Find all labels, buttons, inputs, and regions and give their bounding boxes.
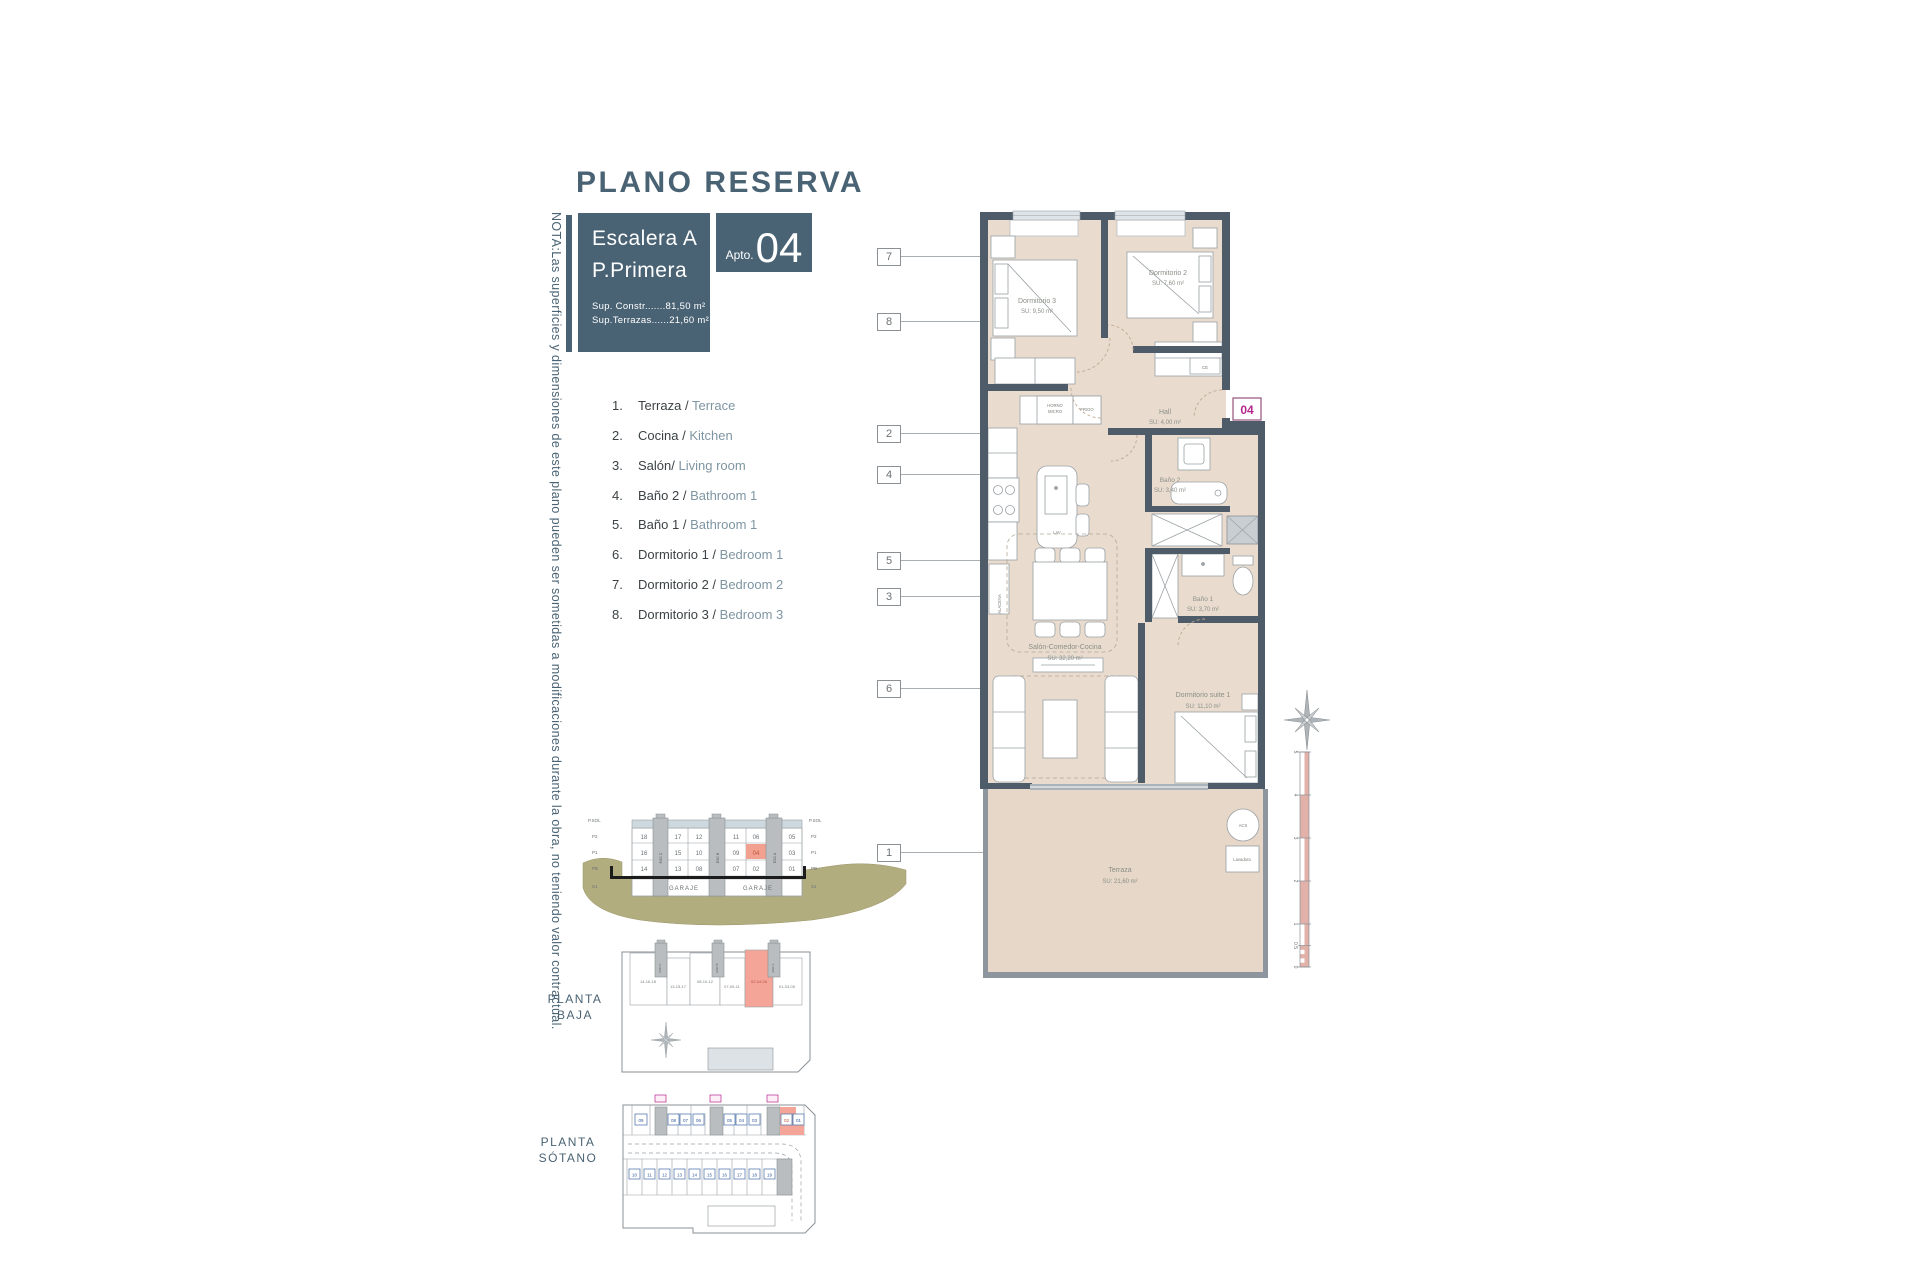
svg-text:08-10-12: 08-10-12: [697, 979, 714, 984]
svg-text:P.SOL: P.SOL: [809, 818, 822, 823]
svg-text:16: 16: [641, 851, 648, 857]
badge-number: 04: [1240, 403, 1254, 417]
room-label: Terraza: [1108, 867, 1131, 874]
svg-text:13: 13: [677, 1173, 683, 1178]
baja-pool: [708, 1048, 773, 1070]
svg-text:01: 01: [789, 867, 796, 873]
legend-item: 6.Dormitorio 1 / Bedroom 1: [612, 547, 783, 562]
svg-text:1: 1: [1292, 923, 1298, 926]
lav-label: LAV: [1053, 530, 1061, 535]
svg-text:05: 05: [727, 1118, 733, 1123]
stair-floor-panel: Escalera A P.Primera Sup. Constr.......8…: [578, 213, 710, 352]
svg-text:17: 17: [737, 1173, 743, 1178]
garaje-label: GARAJE: [669, 886, 699, 892]
callout-8: 8: [877, 313, 901, 331]
planta-label: P.Primera: [592, 255, 710, 287]
svg-text:ESC B: ESC B: [716, 852, 720, 863]
legend-item: 4.Baño 2 / Bathroom 1: [612, 488, 757, 503]
svg-text:15: 15: [675, 851, 682, 857]
callout-5: 5: [877, 552, 901, 570]
room-area: SU: 9,50 m²: [1021, 309, 1053, 315]
svg-text:06: 06: [696, 1118, 702, 1123]
svg-text:ESC A: ESC A: [771, 964, 775, 973]
svg-text:19: 19: [767, 1173, 773, 1178]
planta-sotano-label: PLANTA SÓTANO: [538, 1135, 598, 1166]
legend-item: 7.Dormitorio 2 / Bedroom 2: [612, 577, 783, 592]
room-label: Salón-Comedor-Cocina: [1028, 644, 1101, 651]
svg-text:03: 03: [789, 851, 796, 857]
svg-text:0.5: 0.5: [1292, 942, 1298, 949]
svg-text:03: 03: [752, 1118, 758, 1123]
acs-label: ACS: [1239, 823, 1248, 828]
escalera-label: Escalera A: [592, 223, 710, 255]
svg-text:10: 10: [696, 851, 703, 857]
alacena-label: ALACENA: [997, 594, 1002, 614]
room-area: SU: 32,20 m²: [1047, 656, 1082, 662]
svg-text:ESC C: ESC C: [659, 852, 663, 863]
room-label: Hall: [1159, 409, 1172, 416]
room-label: Dormitorio suite 1: [1176, 692, 1231, 699]
scale-bar: [1298, 752, 1311, 967]
svg-text:07: 07: [683, 1118, 689, 1123]
svg-text:3: 3: [1292, 837, 1298, 840]
svg-text:07-09-11: 07-09-11: [724, 984, 740, 989]
svg-text:15: 15: [707, 1173, 713, 1178]
svg-text:02: 02: [784, 1118, 790, 1123]
ce-label: CE: [1202, 365, 1208, 370]
svg-text:11: 11: [647, 1173, 652, 1178]
room-area: SU: 4,00 m²: [1149, 420, 1181, 426]
room-label: Baño 2: [1160, 477, 1181, 484]
apartment-number-panel: Apto. 04: [716, 213, 812, 272]
svg-text:S1: S1: [811, 884, 817, 889]
corridor-wardrobe: [1152, 514, 1258, 546]
svg-text:14-16-18: 14-16-18: [640, 979, 657, 984]
svg-text:S1: S1: [592, 884, 598, 889]
legend-item: 3.Salón/ Living room: [612, 458, 746, 473]
svg-text:01-03-05: 01-03-05: [779, 984, 796, 989]
room-label: Dormitorio 3: [1018, 298, 1056, 305]
page-title: PLANO RESERVA: [576, 166, 864, 200]
garaje-label: GARAJE: [743, 886, 773, 892]
callout-6: 6: [877, 680, 901, 698]
callout-2: 2: [877, 425, 901, 443]
svg-text:0: 0: [1292, 966, 1298, 969]
legend-item: 5.Baño 1 / Bathroom 1: [612, 517, 757, 532]
svg-text:02: 02: [753, 867, 760, 873]
sup-terrazas: Sup.Terrazas......21,60 m²: [592, 314, 710, 328]
compass-and-scale: 5 4 3 2 1 0.5 0: [1278, 688, 1348, 988]
svg-text:05: 05: [789, 835, 796, 841]
legend-item: 8.Dormitorio 3 / Bedroom 3: [612, 607, 783, 622]
svg-text:14: 14: [641, 867, 648, 873]
compass-rose-icon: [1284, 690, 1330, 750]
room-area: SU: 11,10 m²: [1186, 704, 1221, 710]
svg-text:14: 14: [692, 1173, 698, 1178]
svg-text:18: 18: [752, 1173, 758, 1178]
room-area: SU: 3,40 m²: [1154, 488, 1186, 494]
horno-label: HORNO: [1047, 403, 1063, 408]
lavadora-label: Lavadora: [1233, 857, 1251, 862]
svg-text:10: 10: [632, 1173, 638, 1178]
svg-text:P2: P2: [592, 834, 598, 839]
svg-text:12: 12: [696, 835, 703, 841]
svg-text:16: 16: [722, 1173, 728, 1178]
svg-text:02-04-06: 02-04-06: [751, 979, 768, 984]
svg-text:PB: PB: [592, 866, 598, 871]
svg-text:04: 04: [753, 851, 760, 857]
svg-text:P1: P1: [811, 850, 817, 855]
building-section-diagram: 18 17 12 11 06 05 16 15 10 09 04 03 14 1…: [580, 808, 910, 943]
micro-label: MICRO: [1048, 409, 1063, 414]
svg-text:ESC B: ESC B: [715, 963, 719, 972]
frigo-label: FRIGO: [1080, 407, 1094, 412]
svg-text:13-15-17: 13-15-17: [670, 984, 687, 989]
callout-7: 7: [877, 248, 901, 266]
floor-plan: Dormitorio 3 SU: 9,50 m² Dormitorio 2 SU…: [975, 200, 1325, 990]
apartment-badge: 04: [1233, 398, 1261, 420]
svg-text:4: 4: [1292, 794, 1298, 797]
svg-text:PB: PB: [811, 866, 817, 871]
svg-text:2: 2: [1292, 880, 1298, 883]
room-area: SU: 21,60 m²: [1102, 879, 1137, 885]
legend-item: 1.Terraza / Terrace: [612, 398, 735, 413]
accent-bar: [566, 215, 572, 352]
svg-text:09: 09: [733, 851, 740, 857]
room-area: SU: 7,60 m²: [1152, 281, 1184, 287]
svg-text:08: 08: [671, 1118, 677, 1123]
room-label: Dormitorio 2: [1149, 270, 1187, 277]
svg-text:11: 11: [733, 835, 740, 841]
svg-text:5: 5: [1292, 751, 1298, 754]
svg-text:08: 08: [696, 867, 703, 873]
svg-text:07: 07: [733, 867, 740, 873]
svg-text:13: 13: [675, 867, 682, 873]
callout-3: 3: [877, 588, 901, 606]
apto-label: Apto.: [726, 248, 754, 262]
svg-text:06: 06: [753, 835, 760, 841]
room-area: SU: 3,70 m²: [1187, 607, 1219, 613]
svg-text:P2: P2: [811, 834, 817, 839]
svg-text:P.SOL: P.SOL: [588, 818, 601, 823]
svg-text:P1: P1: [592, 850, 598, 855]
apto-number: 04: [756, 230, 803, 266]
svg-text:09: 09: [638, 1118, 644, 1123]
svg-text:ESC C: ESC C: [658, 963, 662, 973]
svg-text:17: 17: [675, 835, 682, 841]
svg-text:ESC A: ESC A: [773, 852, 777, 863]
plano-reserva-sheet: { "title": "PLANO RESERVA", "header": { …: [0, 0, 1920, 1280]
svg-text:04: 04: [739, 1118, 745, 1123]
svg-text:01: 01: [796, 1118, 802, 1123]
legend-item: 2.Cocina / Kitchen: [612, 428, 733, 443]
svg-text:12: 12: [662, 1173, 668, 1178]
sotano-pool: [708, 1206, 775, 1226]
sup-constr: Sup. Constr.......81,50 m²: [592, 300, 710, 314]
planta-baja-label: PLANTA BAJA: [545, 992, 605, 1023]
room-label: Baño 1: [1193, 596, 1214, 603]
svg-text:18: 18: [641, 835, 648, 841]
scale-tick-labels: 5 4 3 2 1 0.5 0: [1292, 751, 1298, 969]
callout-4: 4: [877, 466, 901, 484]
